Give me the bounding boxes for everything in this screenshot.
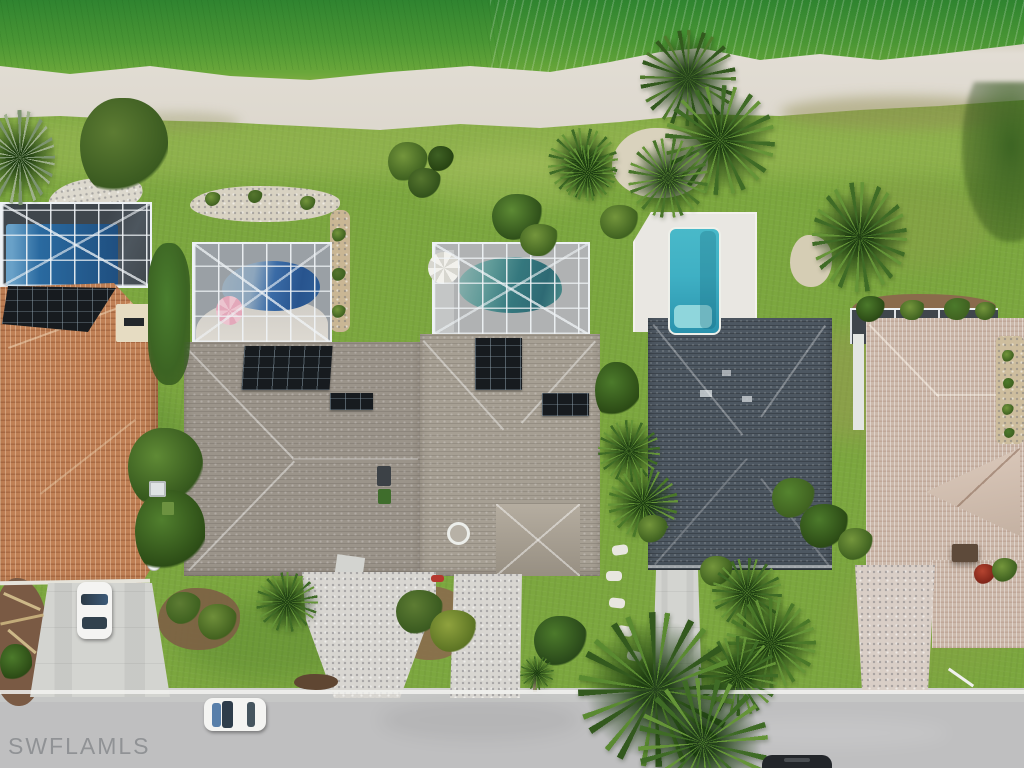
bush: [332, 305, 346, 318]
palm-tree: [256, 572, 318, 632]
bush: [408, 168, 442, 198]
roof-vent: [722, 370, 731, 376]
bush: [1002, 350, 1014, 362]
street-edge-line: [0, 690, 1024, 694]
car-rear-window: [82, 617, 107, 629]
bush: [248, 190, 263, 203]
roof-ridge: [40, 419, 136, 494]
bush: [166, 592, 202, 624]
roof-ridge: [869, 324, 940, 397]
recycle-bin: [378, 489, 391, 504]
bush: [838, 528, 874, 560]
small-tree: [428, 146, 454, 172]
bush: [332, 268, 346, 281]
roof-ridge: [760, 325, 826, 418]
aerial-photo: SWFLAMLS: [0, 0, 1024, 768]
house1-pool-cage: [0, 202, 152, 288]
mulch-spot: [294, 674, 338, 690]
car-roof-highlight: [784, 758, 810, 762]
house2-solar-panels: [330, 393, 373, 410]
utility-vent: [124, 318, 144, 326]
house5-driveway: [853, 563, 937, 693]
roof-ridge: [188, 461, 295, 572]
hedge: [148, 243, 190, 385]
ac-unit: [149, 481, 166, 497]
house3-solar-panels: [475, 338, 522, 390]
house3-pool-cage: [432, 242, 590, 336]
cage-screen-grid: [194, 244, 330, 342]
bush: [198, 604, 238, 640]
bush: [975, 302, 997, 320]
house2-pool-cage: [192, 242, 332, 344]
pool-shadow-edge: [700, 231, 716, 329]
bush: [0, 644, 32, 682]
red-grill: [431, 575, 444, 582]
bush: [944, 298, 972, 320]
bush: [638, 515, 668, 543]
cage-screen-grid: [434, 244, 588, 334]
bush: [1002, 404, 1014, 415]
street: [0, 688, 1024, 768]
palm-tree: [560, 145, 616, 201]
bush: [300, 196, 316, 210]
white-car-street: [204, 698, 266, 731]
house5-entry-door: [952, 544, 978, 562]
tree-canopy: [962, 82, 1024, 242]
roof-vent: [742, 396, 752, 402]
white-car-driveway: [77, 582, 112, 639]
dark-car-partial: [762, 755, 832, 768]
bush: [595, 362, 639, 420]
stepping-stone: [609, 597, 626, 609]
mls-watermark: SWFLAMLS: [8, 733, 151, 760]
car-windshield: [81, 594, 108, 605]
cage-screen-grid: [2, 204, 150, 286]
house2-solar-panels: [241, 346, 332, 390]
palm-tree: [812, 182, 907, 292]
roof-vent: [447, 522, 470, 545]
trash-bin: [377, 466, 391, 486]
bush: [80, 98, 168, 196]
roof-ridge: [652, 324, 743, 436]
stepping-stone: [606, 571, 622, 581]
utility-box: [162, 502, 174, 515]
house4-pool: [668, 227, 721, 335]
entry-gable: [496, 504, 580, 576]
roof-ridge: [292, 458, 418, 460]
house5-wall: [853, 334, 864, 430]
bush: [205, 192, 221, 206]
bush: [992, 558, 1018, 582]
bush: [520, 224, 560, 256]
car-windshield: [222, 701, 233, 728]
bush: [900, 300, 926, 320]
house3-solar-panels: [542, 393, 589, 416]
small-palm: [520, 656, 554, 690]
car-rear-window: [247, 702, 255, 727]
bush: [1003, 378, 1014, 389]
bush: [1004, 428, 1015, 438]
water-ripples: [0, 0, 500, 70]
car-side-glass: [212, 703, 221, 727]
bush: [430, 610, 478, 652]
bush: [856, 296, 886, 322]
palm-tree: [628, 138, 708, 218]
bush: [600, 205, 640, 239]
bush: [332, 228, 346, 242]
